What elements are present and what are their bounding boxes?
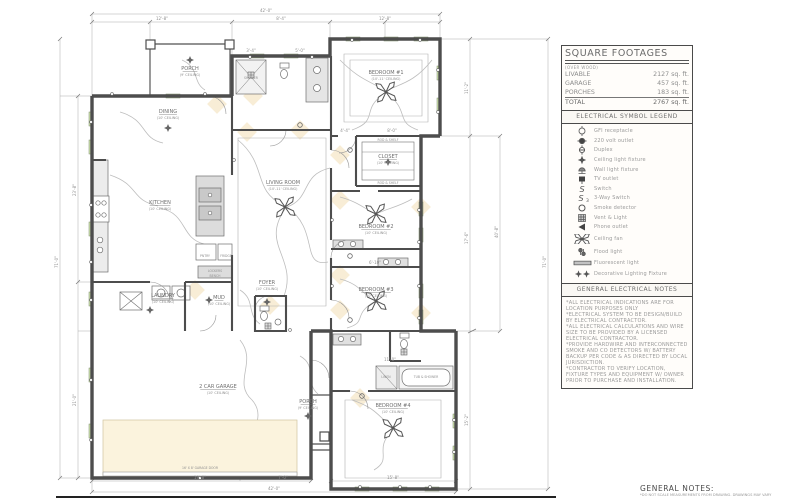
room-ceiling-note: (10' CEILING) bbox=[365, 231, 388, 235]
room-labels: PORCH(9' CEILING)DINING(10' CEILING)KITC… bbox=[149, 66, 411, 414]
room-name: BEDROOM #4 bbox=[375, 403, 410, 409]
room-label: 2 CAR GARAGE(10' CEILING) bbox=[199, 384, 237, 395]
fixture-label: ROD & SHELF bbox=[377, 138, 398, 142]
dimension-label: 42'-0" bbox=[268, 486, 280, 491]
general-notes: GENERAL NOTES: *DO NOT SCALE MEASUREMENT… bbox=[640, 484, 798, 497]
duplex-outlet-icon bbox=[437, 111, 440, 114]
dimension-label: 23'-8" bbox=[72, 184, 77, 196]
duplex-outlet-icon bbox=[90, 204, 93, 207]
sf-value: 183 sq. ft. bbox=[657, 88, 689, 97]
duplex-outlet-icon bbox=[453, 419, 456, 422]
legend-item-label: Ceiling fan bbox=[594, 236, 623, 242]
room-ceiling-note: (10'-11' CEILING) bbox=[268, 187, 298, 191]
legend-header: ELECTRICAL SYMBOL LEGEND bbox=[562, 110, 692, 124]
room-name: MUD bbox=[213, 295, 225, 301]
room-label: BEDROOM #3(10' CEILING) bbox=[358, 287, 393, 298]
porch-post bbox=[225, 40, 234, 49]
room-label: KITCHEN(10' CEILING) bbox=[149, 200, 172, 211]
legend-item: Phone outlet bbox=[572, 222, 690, 232]
legend-item: Smoke detector bbox=[572, 203, 690, 213]
dimension-label: 12'-8" bbox=[379, 16, 391, 21]
dimension-label: 12'-8" bbox=[156, 16, 168, 21]
sf-value: 2767 sq. ft. bbox=[653, 98, 689, 107]
porch-post bbox=[146, 40, 155, 49]
room-ceiling-note: (10' CEILING) bbox=[365, 294, 388, 298]
room-ceiling-note: (10' CEILING) bbox=[149, 207, 172, 211]
square-footages-title: SQUARE FOOTAGES bbox=[565, 48, 689, 59]
duplex-outlet-icon bbox=[418, 241, 421, 244]
duplex-outlet-icon bbox=[111, 93, 114, 96]
room-ceiling-note: (10' CEILING) bbox=[207, 391, 230, 395]
legend-item-label: GFI receptacle bbox=[594, 128, 633, 134]
legend-item-label: TV outlet bbox=[594, 176, 618, 182]
ceiling-fan-icon bbox=[381, 416, 404, 439]
square-footage-row: LIVABLE2127 sq. ft. bbox=[565, 70, 689, 79]
legend-item: Fluorescent light bbox=[572, 258, 690, 268]
duplex-outlet-icon bbox=[418, 285, 421, 288]
fan-icon bbox=[572, 234, 594, 244]
room-label: BEDROOM #1(10'-11' CEILING) bbox=[368, 70, 403, 81]
duplex-outlet-icon bbox=[429, 486, 432, 489]
legend-item: Wall light fixture bbox=[572, 165, 690, 175]
door-glow bbox=[330, 190, 350, 210]
drawing-sheet: PORCH(9' CEILING)DINING(10' CEILING)KITC… bbox=[0, 0, 800, 500]
dimension-label: 71'-0" bbox=[542, 256, 547, 268]
floor-plan: PORCH(9' CEILING)DINING(10' CEILING)KITC… bbox=[0, 0, 560, 500]
ceiling-light-icon bbox=[164, 124, 172, 132]
sf-label: TOTAL bbox=[565, 98, 585, 107]
general-notes-line: *DO NOT SCALE MEASUREMENTS FROM DRAWING.… bbox=[640, 493, 798, 497]
dimension-label: 11'-2" bbox=[464, 82, 469, 94]
room-ceiling-note: (10'-11' CEILING) bbox=[371, 77, 401, 81]
fixture-label: LINEN bbox=[381, 375, 391, 379]
room-name: LIVING ROOM bbox=[266, 180, 300, 186]
room-label: BEDROOM #2(10' CEILING) bbox=[358, 224, 393, 235]
door-glow bbox=[237, 122, 257, 142]
sf-value: 2127 sq. ft. bbox=[653, 70, 689, 79]
duplex-outlet-icon bbox=[90, 439, 93, 442]
dimension-label: 11'-0" bbox=[384, 357, 396, 362]
legend-item: Vent & Light bbox=[572, 213, 690, 223]
porch-post bbox=[320, 432, 329, 441]
room-ceiling-note: (10' CEILING) bbox=[208, 302, 231, 306]
dimension-label: 6'-10" bbox=[369, 260, 381, 265]
electrical-note-line: *CONTRACTOR TO VERIFY LOCATION, FIXTURE … bbox=[566, 366, 688, 384]
room-name: KITCHEN bbox=[149, 200, 171, 206]
electrical-note-line: *ALL ELECTRICAL CALCULATIONS AND WIRE SI… bbox=[566, 324, 688, 342]
door-glow bbox=[330, 145, 350, 165]
fixture-label: LOCKERS bbox=[208, 269, 222, 273]
dimension-label: 3'-4" bbox=[246, 48, 256, 53]
duplex-outlet-icon bbox=[418, 317, 421, 320]
door-glow bbox=[330, 265, 350, 285]
duplex-outlet-icon bbox=[419, 39, 422, 42]
fixture-label: FRIDGE bbox=[220, 254, 232, 258]
electrical-notes-header: GENERAL ELECTRICAL NOTES bbox=[562, 283, 692, 297]
vent-light-icon bbox=[401, 349, 407, 355]
legend-item-label: 3-Way Switch bbox=[594, 195, 630, 201]
duplex-outlet-icon bbox=[331, 285, 334, 288]
dimension-labels: 42'-0"12'-8"8'-4"12'-8"3'-4"5'-0"4'-4"8'… bbox=[54, 8, 547, 491]
porch-outline bbox=[150, 44, 331, 450]
room-name: DINING bbox=[159, 109, 177, 115]
legend-item: 220 volt outlet bbox=[572, 136, 690, 146]
fixture-label: TUB & SHOWER bbox=[413, 375, 439, 379]
legend-item-label: Ceiling light fixture bbox=[594, 157, 646, 163]
legend-item-label: Fluorescent light bbox=[594, 260, 639, 266]
ceiling-fan-icon bbox=[374, 80, 397, 103]
dimension-label: 42'-0" bbox=[260, 8, 272, 13]
duplex-outlet-icon bbox=[437, 69, 440, 72]
dimension-label: 40'-8" bbox=[494, 226, 499, 238]
room-name: 2 CAR GARAGE bbox=[199, 384, 237, 390]
dimension-label: 15'-8" bbox=[387, 475, 399, 480]
legend-item: Duplex bbox=[572, 146, 690, 156]
dimension-label: 4'-4" bbox=[340, 128, 350, 133]
dimension-label: 8'-0" bbox=[387, 128, 397, 133]
flood-icon bbox=[572, 247, 594, 257]
dimension-label: 19'-8" bbox=[194, 475, 206, 480]
legend-item-label: Vent & Light bbox=[594, 215, 627, 221]
tv-icon bbox=[572, 174, 594, 184]
fixture-label: SHOWER bbox=[244, 76, 259, 80]
electrical-note-line: *ELECTRICAL SYSTEM TO BE DESIGN/BUILD BY… bbox=[566, 312, 688, 324]
switch-icon: S bbox=[572, 184, 594, 194]
fixture-label: ROD & SHELF bbox=[377, 181, 398, 185]
ceil-light-icon bbox=[572, 155, 594, 165]
duplex-outlet-icon bbox=[249, 56, 252, 59]
sf-value: 457 sq. ft. bbox=[657, 79, 689, 88]
duplex-outlet-icon bbox=[90, 379, 93, 382]
duplex-outlet-icon bbox=[359, 486, 362, 489]
sf-label: GARAGE bbox=[565, 79, 591, 88]
duplex-outlet-icon bbox=[289, 329, 292, 332]
square-footage-row: PORCHES183 sq. ft. bbox=[565, 88, 689, 97]
divider bbox=[565, 60, 689, 64]
room-name: PORCH bbox=[299, 399, 317, 405]
dimension-label: 5'-0" bbox=[295, 48, 305, 53]
info-panel: SQUARE FOOTAGES (OVER WOOD) LIVABLE2127 … bbox=[561, 45, 693, 389]
fluor-icon bbox=[572, 258, 594, 268]
room-ceiling-note: (10' CEILING) bbox=[382, 410, 405, 414]
general-notes-title: GENERAL NOTES: bbox=[640, 484, 798, 493]
v220-icon bbox=[572, 136, 594, 146]
square-footage-row: GARAGE457 sq. ft. bbox=[565, 79, 689, 88]
duplex-outlet-icon bbox=[233, 159, 236, 162]
gfi-icon bbox=[572, 126, 594, 136]
legend-item-label: Duplex bbox=[594, 147, 613, 153]
room-name: PORCH bbox=[181, 66, 199, 72]
room-ceiling-note: (10' CEILING) bbox=[157, 116, 180, 120]
smoke-icon bbox=[572, 203, 594, 213]
room-ceiling-note: (9' CEILING) bbox=[298, 406, 319, 410]
door-arcs bbox=[150, 96, 368, 409]
room-name: LAUNDRY bbox=[151, 293, 176, 299]
ceiling-light-icon bbox=[146, 306, 154, 314]
room-name: BEDROOM #2 bbox=[358, 224, 393, 230]
duplex-outlet-icon bbox=[351, 39, 354, 42]
electrical-note-line: *ALL ELECTRICAL INDICATIONS ARE FOR LOCA… bbox=[566, 300, 688, 312]
legend-item-label: Phone outlet bbox=[594, 224, 628, 230]
legend-item-label: Wall light fixture bbox=[594, 167, 639, 173]
legend-item-label: Smoke detector bbox=[594, 205, 636, 211]
duplex-outlet-icon bbox=[90, 299, 93, 302]
legend-item: GFI receptacle bbox=[572, 127, 690, 137]
room-name: CLOSET bbox=[378, 154, 398, 160]
smoke-detector-icon bbox=[348, 318, 353, 323]
phone-icon bbox=[572, 222, 594, 232]
duplex-outlet-icon bbox=[418, 209, 421, 212]
legend-list: GFI receptacle220 volt outletDuplexCeili… bbox=[562, 127, 692, 281]
wall-light-icon bbox=[572, 165, 594, 175]
room-label: LIVING ROOM(10'-11' CEILING) bbox=[266, 180, 300, 191]
legend-item: TV outlet bbox=[572, 174, 690, 184]
duplex-outlet-icon bbox=[90, 121, 93, 124]
room-ceiling-note: (10' CEILING) bbox=[377, 161, 400, 165]
room-label: FOYER(10' CEILING) bbox=[256, 280, 279, 291]
decor-icon bbox=[572, 269, 594, 279]
sheet-border-line bbox=[56, 496, 556, 498]
sf-label: LIVABLE bbox=[565, 70, 590, 79]
room-name: BEDROOM #1 bbox=[368, 70, 403, 76]
room-label: BEDROOM #4(10' CEILING) bbox=[375, 403, 410, 414]
duplex-outlet-icon bbox=[90, 261, 93, 264]
duplex-outlet-icon bbox=[311, 56, 314, 59]
ceiling-light-symbols bbox=[146, 56, 392, 420]
legend-item-label: Switch bbox=[594, 186, 612, 192]
legend-item-label: Flood light bbox=[594, 249, 622, 255]
square-footage-row: TOTAL2767 sq. ft. bbox=[565, 97, 689, 107]
vent-light-icon bbox=[265, 323, 271, 329]
legend-item-label: 220 volt outlet bbox=[594, 138, 634, 144]
room-label: LAUNDRY(10' CEILING) bbox=[151, 293, 176, 304]
vent-icon bbox=[572, 213, 594, 223]
legend-item: Flood light bbox=[572, 245, 690, 258]
duplex-outlet-icon bbox=[453, 451, 456, 454]
fixture-label: PNTRY bbox=[200, 254, 210, 258]
room-label: PORCH(9' CEILING) bbox=[180, 66, 201, 77]
legend-item-label: Decorative Lighting Fixture bbox=[594, 271, 667, 277]
dimension-label: 8'-4" bbox=[276, 16, 286, 21]
duplex-outlet-icon bbox=[204, 93, 207, 96]
room-ceiling-note: (9' CEILING) bbox=[180, 73, 201, 77]
room-name: FOYER bbox=[259, 280, 276, 286]
dimension-label: 17'-6" bbox=[464, 232, 469, 244]
legend-item: Ceiling light fixture bbox=[572, 155, 690, 165]
legend-item: Decorative Lighting Fixture bbox=[572, 268, 690, 281]
room-ceiling-note: (10' CEILING) bbox=[152, 300, 175, 304]
legend-item: Ceiling fan bbox=[572, 232, 690, 245]
electrical-notes: *ALL ELECTRICAL INDICATIONS ARE FOR LOCA… bbox=[562, 297, 692, 388]
room-name: BEDROOM #3 bbox=[358, 287, 393, 293]
dimension-label: 21'-0" bbox=[72, 394, 77, 406]
switch3-icon: S3 bbox=[572, 193, 594, 203]
duplex-outlet-icon bbox=[331, 219, 334, 222]
room-label: CLOSET(10' CEILING) bbox=[377, 154, 400, 165]
fixture-label: BENCH bbox=[210, 274, 222, 278]
dimension-label: 7'-0" bbox=[278, 475, 288, 480]
electrical-note-line: *PROVIDE HARDWIRE AND INTERCONNECTED SMO… bbox=[566, 342, 688, 366]
smoke-detector-icon bbox=[348, 254, 353, 259]
dimension-label: 15'-2" bbox=[464, 414, 469, 426]
sf-label: PORCHES bbox=[565, 88, 595, 97]
ceiling-fan-icon bbox=[273, 195, 296, 218]
room-label: DINING(10' CEILING) bbox=[157, 109, 180, 120]
legend-item: SSwitch bbox=[572, 184, 690, 194]
square-footages-table: SQUARE FOOTAGES (OVER WOOD) LIVABLE2127 … bbox=[562, 46, 692, 108]
fixture-label: 16' X 8' GARAGE DOOR bbox=[182, 466, 219, 470]
duplex-outlet-icon bbox=[399, 486, 402, 489]
duplex-icon bbox=[572, 145, 594, 155]
ceiling-fan-icon bbox=[364, 202, 387, 225]
legend-item: S33-Way Switch bbox=[572, 194, 690, 204]
dimension-label: 71'-0" bbox=[54, 256, 59, 268]
room-ceiling-note: (10' CEILING) bbox=[256, 287, 279, 291]
room-label: PORCH(9' CEILING) bbox=[298, 399, 319, 410]
